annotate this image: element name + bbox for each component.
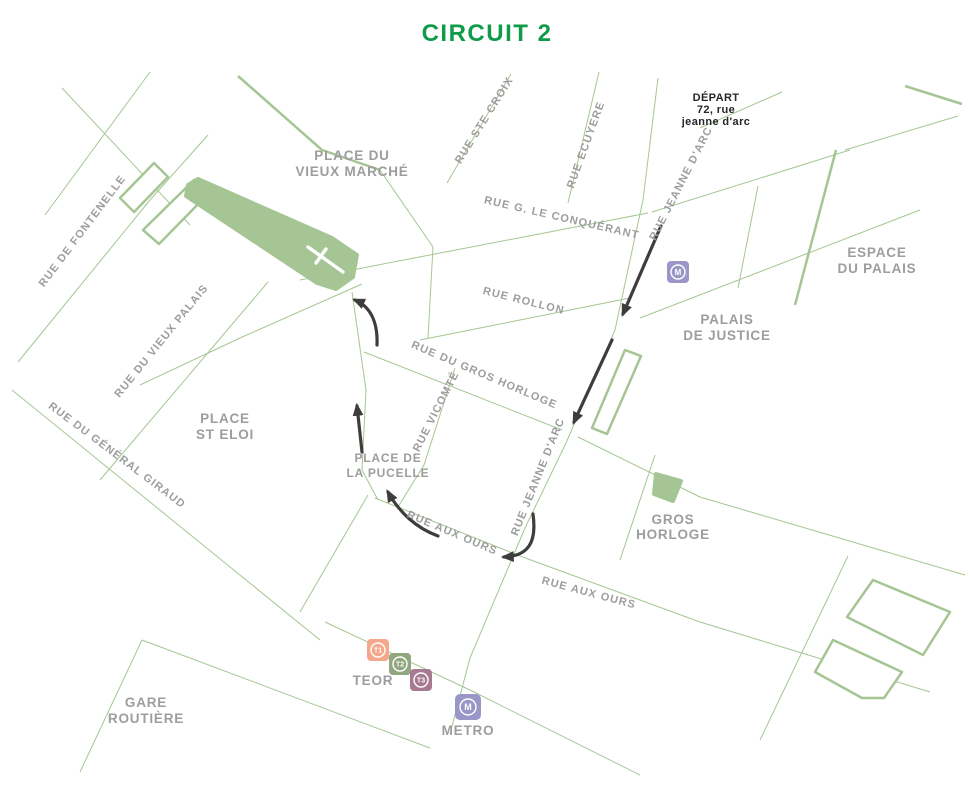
- place-label-vieux-marche: VIEUX MARCHÉ: [295, 164, 408, 179]
- street-label-rue-jeanne-darc-nord: RUE JEANNE D'ARC: [647, 125, 715, 243]
- place-label-gros-horloge: GROS: [652, 512, 695, 527]
- depart-annotation: DÉPART 72, rue jeanne d'arc: [681, 91, 751, 128]
- street-label-rue-ecuyere: RUE ECUYERE: [565, 100, 608, 190]
- street-label-rue-aux-ours-ouest: RUE AUX OURS: [405, 509, 499, 558]
- place-labels: PLACE DU VIEUX MARCHÉ PLACE ST ELOI PLAC…: [108, 148, 917, 738]
- street-label-rue-de-fontenelle: RUE DE FONTENELLE: [37, 173, 129, 289]
- place-label-st-eloi: PLACE: [200, 411, 250, 426]
- place-label-palais-de-justice: DE JUSTICE: [683, 328, 771, 343]
- place-label-gare-routiere: ROUTIÈRE: [108, 711, 184, 726]
- block-outlines: [120, 76, 962, 698]
- svg-text:T2: T2: [396, 662, 404, 669]
- place-label-teor: TEOR: [353, 673, 394, 688]
- place-label-espace-du-palais: ESPACE: [847, 245, 906, 260]
- svg-text:M: M: [675, 268, 682, 277]
- gros-horloge-monument: [654, 474, 681, 501]
- depart-label: jeanne d'arc: [681, 116, 751, 128]
- svg-text:M: M: [464, 702, 472, 712]
- street-label-rue-aux-ours-est: RUE AUX OURS: [540, 575, 637, 612]
- place-label-palais-de-justice: PALAIS: [700, 312, 753, 327]
- place-label-pucelle: LA PUCELLE: [347, 466, 430, 480]
- place-label-pucelle: PLACE DE: [354, 451, 421, 465]
- place-label-espace-du-palais: DU PALAIS: [838, 261, 917, 276]
- place-label-gros-horloge: HORLOGE: [636, 527, 710, 542]
- teor-t2-icon: T2: [389, 653, 411, 675]
- depart-label: DÉPART: [693, 91, 740, 104]
- place-label-gare-routiere: GARE: [125, 695, 167, 710]
- place-label-vieux-marche: PLACE DU: [314, 148, 389, 163]
- street-label-rue-du-general-giraud: RUE DU GÉNÉRAL GIRAUD: [46, 399, 188, 511]
- street-label-rue-ste-croix: RUE STE CROIX: [453, 75, 516, 166]
- city-block: [815, 640, 902, 698]
- street-label-rue-rollon: RUE ROLLON: [482, 285, 566, 317]
- street-label-rue-du-vieux-palais: RUE DU VIEUX PALAIS: [112, 282, 211, 400]
- street-label-rue-g-le-conquerant: RUE G. LE CONQUÉRANT: [483, 193, 641, 241]
- svg-text:T3: T3: [417, 678, 425, 685]
- place-label-st-eloi: ST ELOI: [196, 427, 254, 442]
- map-canvas: RUE STE CROIX RUE ECUYERE RUE JEANNE D'A…: [0, 0, 974, 798]
- street-label-rue-du-gros-horloge: RUE DU GROS HORLOGE: [409, 339, 558, 411]
- metro-icon: M: [455, 694, 481, 720]
- depart-label: 72, rue: [697, 104, 735, 116]
- street-label-rue-jeanne-darc-sud: RUE JEANNE D'ARC: [509, 416, 567, 537]
- teor-t1-icon: T1: [367, 639, 389, 661]
- svg-text:T1: T1: [374, 648, 382, 655]
- church-shape: [186, 179, 357, 289]
- street-label-rue-vicomte: RUE VICOMTÉ: [410, 369, 462, 454]
- place-label-metro: METRO: [442, 723, 495, 738]
- route-arrow-5: [357, 406, 362, 452]
- circuit-map-page: CIRCUIT 2: [0, 0, 974, 798]
- metro-icon: M: [667, 261, 689, 283]
- city-block: [847, 580, 950, 655]
- teor-t3-icon: T3: [410, 669, 432, 691]
- median-block: [592, 350, 641, 434]
